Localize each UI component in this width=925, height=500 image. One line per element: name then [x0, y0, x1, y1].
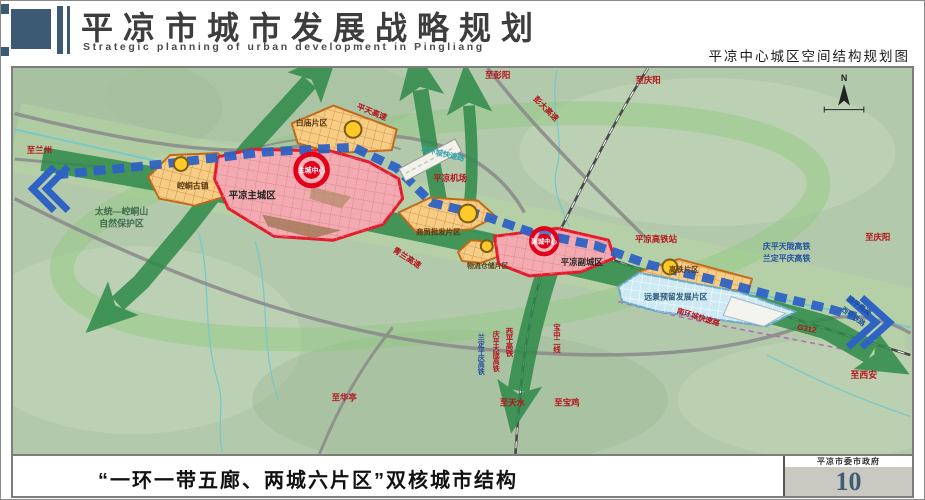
label-main-city: 平凉主城区: [229, 190, 277, 201]
label-to-huating: 至华亭: [332, 393, 358, 403]
label-baozhong-line2: 宝中二线: [552, 322, 561, 354]
label-logistics-district: 物流仓储片区: [467, 261, 509, 270]
page-number-box: 平凉市委市政府 10: [783, 456, 912, 496]
label-to-pengyang: 至彭阳: [485, 70, 510, 80]
planning-map: 主城中心 副城中心 至兰州 太统—崆峒山 自然保护区 崆峒古镇 平凉主城区 白庙…: [11, 66, 914, 456]
label-main-core: 主城中心: [298, 165, 326, 174]
label-reserved-district: 远景预留发展片区: [644, 292, 707, 302]
node-logistics: [481, 240, 493, 252]
label-kongtong-town: 崆峒古镇: [177, 181, 209, 191]
node-trade: [459, 205, 477, 223]
label-hsr-station: 平凉高铁站: [635, 234, 678, 244]
label-trade-district: 商贸批发片区: [416, 226, 461, 236]
header-corner-square-bottom: [1, 47, 9, 56]
node-baimiao: [345, 121, 362, 138]
label-hsr-district: 高铁片区: [669, 264, 699, 274]
label-to-qingyang-east: 至庆阳: [865, 232, 890, 242]
map-caption: 平凉中心城区空间结构规划图: [709, 45, 911, 65]
label-airport: 平凉机场: [433, 173, 467, 183]
label-to-xian: 至西安: [851, 369, 878, 380]
compass-n-label: N: [841, 73, 847, 83]
label-to-lanzhou: 至兰州: [27, 145, 52, 155]
label-to-tianshui: 至天水: [500, 398, 526, 408]
map-canvas: 主城中心 副城中心 至兰州 太统—崆峒山 自然保护区 崆峒古镇 平凉主城区 白庙…: [13, 68, 912, 454]
label-baimiao-district: 白庙片区: [296, 117, 328, 127]
page-footer: “一环一带五廊、两城六片区”双核城市结构 平凉市委市政府 10: [11, 456, 914, 498]
label-hsr-line2: 兰定平庆高铁: [763, 253, 811, 263]
sub-core-symbol: 副城中心: [531, 228, 557, 254]
structure-title: “一环一带五廊、两城六片区”双核城市结构: [98, 464, 518, 493]
label-hsr-line1: 庆平天陇高铁: [763, 241, 811, 251]
agency-label: 平凉市委市政府: [785, 456, 912, 467]
document-subtitle: Strategic planning of urban development …: [83, 41, 485, 53]
header-accent-square: [11, 9, 51, 49]
header-corner-square-top: [1, 4, 9, 14]
planning-document-page: 平凉市城市发展战略规划 Strategic planning of urban …: [0, 0, 925, 500]
label-to-baoji: 至宝鸡: [554, 398, 579, 408]
label-sub-city: 平凉副城区: [561, 257, 604, 267]
header-accent-bar-thin: [67, 6, 70, 54]
node-kongtong: [174, 157, 188, 171]
header-accent-bar-thick: [57, 6, 63, 54]
page-number: 10: [785, 467, 912, 496]
label-nature-reserve-line1: 太统—崆峒山: [95, 205, 148, 216]
label-sub-core: 副城中心: [531, 237, 557, 246]
label-to-qingyang-north: 至庆阳: [635, 75, 660, 85]
main-core-symbol: 主城中心: [296, 154, 328, 186]
label-nature-reserve-line2: 自然保护区: [99, 217, 144, 228]
label-xiping-hsr: 西平高铁: [505, 327, 514, 358]
